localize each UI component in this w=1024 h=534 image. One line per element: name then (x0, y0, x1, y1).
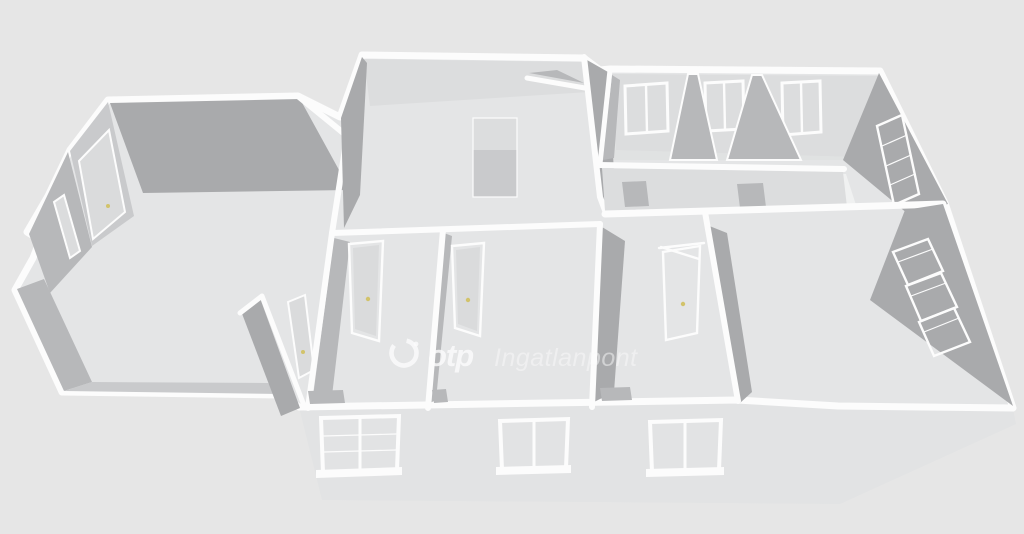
wall-end-gap (600, 387, 632, 401)
doorway-lintel (473, 118, 517, 150)
door-panel (353, 245, 379, 336)
window-mullion (646, 85, 647, 133)
doorway-opening (473, 150, 517, 197)
door-handle-dot (366, 297, 370, 301)
door-handle-dot (466, 298, 470, 302)
floorplan-canvas: otp Ingatlanpont (0, 0, 1024, 534)
wall-end-gap (432, 389, 448, 403)
facade (299, 400, 1016, 504)
otp-logo-dot (414, 342, 419, 347)
window-mullion (801, 82, 802, 133)
watermark-brand-light: Ingatlanpont (494, 344, 638, 372)
floorplan-render: otp Ingatlanpont (0, 0, 1024, 534)
window-mullion (724, 82, 725, 130)
interior-doorway (473, 118, 517, 197)
door-handle-dot (681, 302, 685, 306)
facade-face (299, 400, 1016, 504)
door-opening-2 (737, 183, 766, 208)
door-handle-dot (301, 350, 305, 354)
door-panel (456, 247, 480, 331)
door-handle-dot (106, 204, 110, 208)
watermark-brand-bold: otp (428, 338, 473, 373)
north-wall-top (599, 165, 844, 169)
door-opening-1 (622, 181, 649, 207)
wall-end-gap (308, 390, 345, 404)
